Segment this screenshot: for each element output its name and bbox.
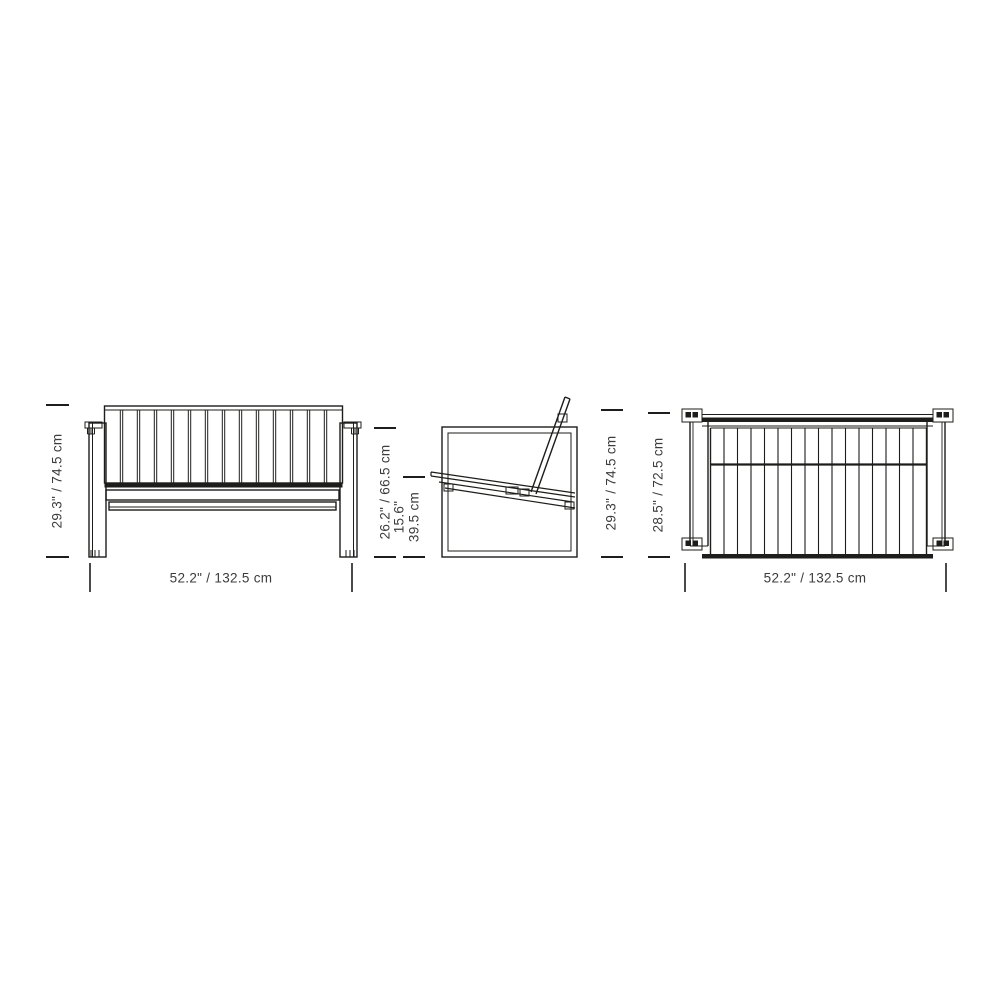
side-overall-height-label: 29.3" / 74.5 cm (604, 436, 619, 531)
front-right-foot (346, 550, 354, 557)
top-front-edge (702, 554, 933, 559)
top-view-drawing (648, 409, 953, 592)
top-depth-label: 28.5" / 72.5 cm (651, 438, 666, 533)
side-backrest-pole (531, 397, 570, 494)
drawing-linework (0, 0, 1000, 1000)
top-left-post (690, 422, 708, 546)
front-seat-rail-lower (109, 502, 336, 510)
front-height-label: 29.3" / 74.5 cm (50, 434, 65, 529)
side-frame-height-label: 26.2" / 66.5 cm (378, 445, 393, 540)
front-seat-back-rail (105, 483, 343, 488)
front-backrest-slats (120, 410, 326, 483)
top-corner-brackets (682, 409, 953, 550)
front-right-bracket (344, 422, 361, 434)
top-surface-slats (724, 428, 913, 554)
dimension-drawing-page: 29.3" / 74.5 cm 52.2" / 132.5 cm 26.2" /… (0, 0, 1000, 1000)
front-seat-rail-upper (106, 490, 339, 500)
top-backrest-bar (702, 415, 933, 427)
top-right-post (927, 422, 945, 546)
front-width-label: 52.2" / 132.5 cm (170, 571, 273, 586)
side-seat-slats (431, 472, 575, 509)
front-view-drawing (46, 405, 361, 592)
front-left-bracket (85, 422, 102, 434)
top-width-label: 52.2" / 132.5 cm (764, 571, 867, 586)
side-seat-height-label: 15.6" 39.5 cm (393, 492, 422, 542)
front-left-leg (89, 423, 106, 557)
